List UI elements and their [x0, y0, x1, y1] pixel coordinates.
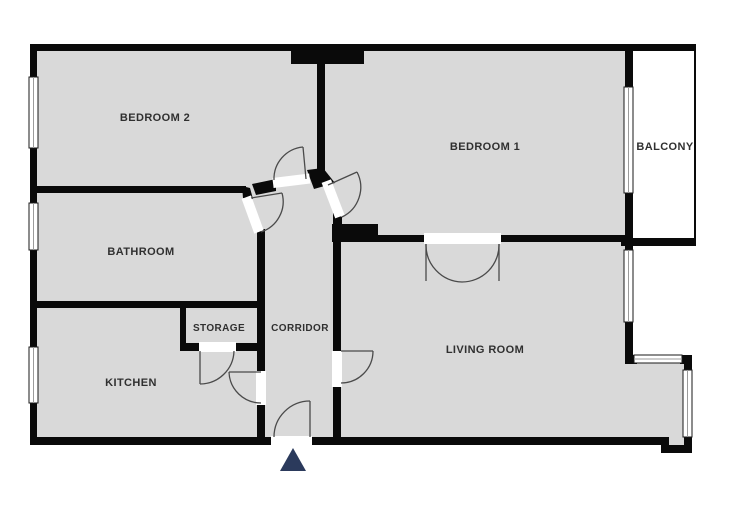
room-label-kitchen: KITCHEN [105, 377, 157, 389]
wall-corridor-left-upper [257, 229, 265, 372]
door-gap-french [424, 233, 501, 244]
room-label-bedroom-1: BEDROOM 1 [450, 141, 520, 153]
wall-corridor-left-lower [257, 404, 265, 445]
floor-plan-page: BEDROOM 2 BEDROOM 1 BALCONY BATHROOM STO… [0, 0, 736, 522]
wall-corridor-right-upper [333, 242, 341, 351]
door-gap-entrance [271, 436, 312, 446]
balcony-railing [694, 48, 696, 240]
room-label-corridor: CORRIDOR [271, 323, 329, 334]
wall-corridor-right-lower [333, 387, 341, 445]
door-gap-kitchen [256, 371, 266, 405]
entrance-arrow-icon [280, 448, 306, 471]
wall-balcony-bottom [621, 238, 696, 246]
room-label-balcony: BALCONY [636, 141, 693, 153]
room-label-living-room: LIVING ROOM [446, 344, 524, 356]
room-label-bedroom-2: BEDROOM 2 [120, 112, 190, 124]
wall-bedroom2-bathroom [30, 186, 246, 193]
wall-bottom [30, 437, 661, 445]
wall-bottom-step-v [661, 437, 669, 453]
wall-bottom-step-corner [684, 437, 692, 453]
room-label-bathroom: BATHROOM [107, 246, 174, 258]
wall-top-tab [291, 51, 364, 64]
wall-bathroom-kitchen [30, 301, 265, 308]
wall-bedrooms-vertical [317, 51, 325, 175]
door-gap-storage [199, 342, 236, 352]
wall-top [30, 44, 696, 51]
wall-bedroom1-living [378, 235, 632, 242]
floor-plan-drawing: BEDROOM 2 BEDROOM 1 BALCONY BATHROOM STO… [0, 0, 736, 522]
room-label-storage: STORAGE [193, 323, 245, 334]
door-gap-living [332, 351, 342, 387]
